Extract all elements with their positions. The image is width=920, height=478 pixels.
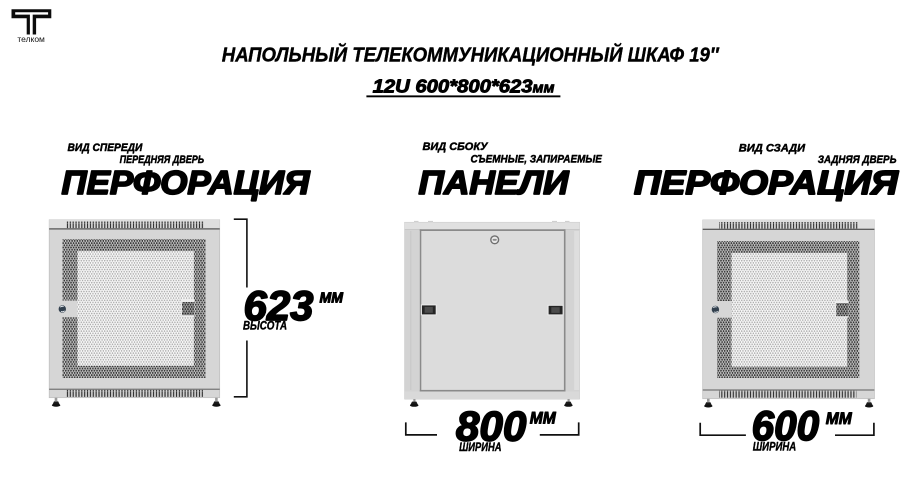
- svg-text:12U 600*800*623: 12U 600*800*623: [373, 77, 533, 97]
- svg-text:ВИД СЗАДИ: ВИД СЗАДИ: [739, 142, 806, 154]
- svg-text:ПЕРФОРАЦИЯ: ПЕРФОРАЦИЯ: [62, 164, 311, 201]
- svg-text:ВЫСОТА: ВЫСОТА: [243, 318, 287, 332]
- svg-text:мм: мм: [533, 80, 555, 97]
- svg-text:ММ: ММ: [530, 409, 557, 428]
- svg-text:ПЕРФОРАЦИЯ: ПЕРФОРАЦИЯ: [634, 165, 900, 202]
- svg-text:ПАНЕЛИ: ПАНЕЛИ: [419, 164, 570, 201]
- svg-text:ММ: ММ: [826, 409, 853, 428]
- svg-text:ШИРИНА: ШИРИНА: [459, 440, 501, 454]
- svg-text:ШИРИНА: ШИРИНА: [753, 440, 796, 454]
- svg-text:ВИД СБОКУ: ВИД СБОКУ: [423, 141, 489, 153]
- svg-text:ВИД СПЕРЕДИ: ВИД СПЕРЕДИ: [68, 142, 143, 154]
- svg-text:ММ: ММ: [320, 289, 344, 306]
- svg-text:НАПОЛЬНЫЙ ТЕЛЕКОММУНИКАЦИОННЫЙ: НАПОЛЬНЫЙ ТЕЛЕКОММУНИКАЦИОННЫЙ ШКАФ 19″: [222, 43, 720, 67]
- svg-text:телком: телком: [17, 35, 44, 44]
